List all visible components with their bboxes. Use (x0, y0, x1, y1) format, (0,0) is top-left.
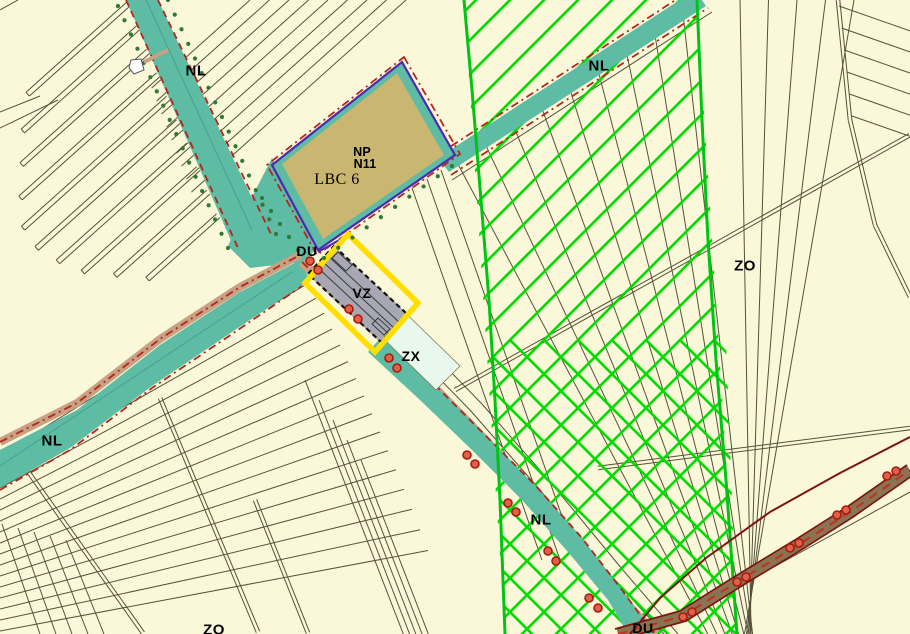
parcel-lines-layer (0, 0, 910, 634)
zoning-map-canvas (0, 0, 910, 634)
green-hatch-zone[interactable] (464, 0, 737, 634)
zoning-map-viewport[interactable]: NLNLNLNLZOZODUDUVZZXNPN11LBC 6 (0, 0, 910, 634)
